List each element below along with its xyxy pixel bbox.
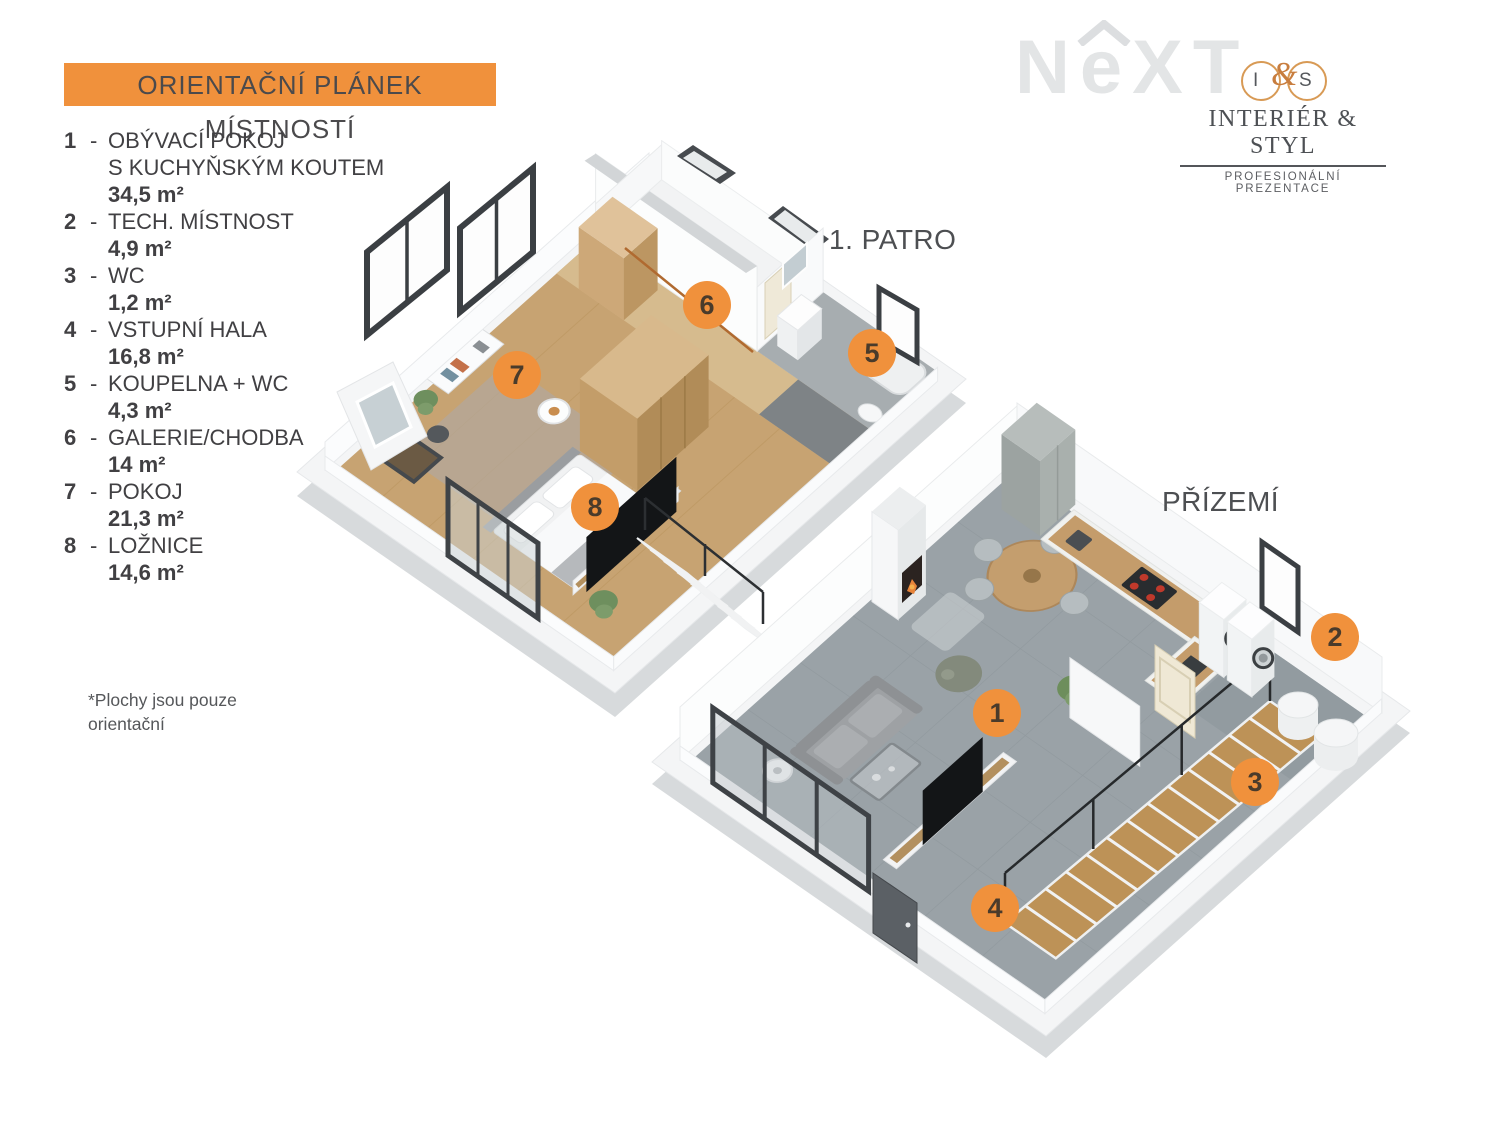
marker-number: 6 <box>699 290 714 321</box>
legend-item-dash: - <box>90 208 108 235</box>
legend-item-name: VSTUPNÍ HALA <box>108 316 267 343</box>
door-handle <box>906 923 911 928</box>
legend-item-number: 7 <box>64 478 90 505</box>
title-banner: ORIENTAČNÍ PLÁNEK MÍSTNOSTÍ <box>64 63 496 106</box>
legend-item-number: 3 <box>64 262 90 289</box>
legend-item-name: KOUPELNA + WC <box>108 370 288 397</box>
marker-number: 5 <box>864 338 879 369</box>
legend-item-dash: - <box>90 532 108 559</box>
interier-styl-logo: I & S INTERIÉR & STYL PROFESIONÁLNÍ PREZ… <box>1180 58 1386 195</box>
legend-item-number: 5 <box>64 370 90 397</box>
legend-item-dash: - <box>90 424 108 451</box>
legend-item-number: 6 <box>64 424 90 451</box>
laundry-basket <box>1314 719 1358 747</box>
fireplace-front <box>872 512 898 620</box>
marker-number: 1 <box>989 698 1004 729</box>
marker-number: 8 <box>587 492 602 523</box>
legend-item-number: 1 <box>64 127 90 154</box>
logo-name: INTERIÉR & STYL <box>1180 106 1386 167</box>
room-marker-8: 8 <box>571 483 619 531</box>
infinity-icon: I & S <box>1235 58 1331 102</box>
dryer <box>1227 602 1274 697</box>
page: ORIENTAČNÍ PLÁNEK MÍSTNOSTÍ 1-OBÝVACÍ PO… <box>0 0 1500 1125</box>
legend-item-number: 2 <box>64 208 90 235</box>
next-letter-n: N <box>1015 25 1080 110</box>
legend-item-dash: - <box>90 316 108 343</box>
room-marker-6: 6 <box>683 281 731 329</box>
ground-floor-label: PŘÍZEMÍ <box>1162 486 1279 518</box>
logo-tagline: PROFESIONÁLNÍ PREZENTACE <box>1180 171 1386 195</box>
legend-item-name: LOŽNICE <box>108 532 203 559</box>
marker-number: 2 <box>1327 622 1342 653</box>
legend-item-dash: - <box>90 262 108 289</box>
next-letter-e-wrap: e <box>1080 28 1132 108</box>
room-marker-3: 3 <box>1231 758 1279 806</box>
legend-item-number: 8 <box>64 532 90 559</box>
monogram-i: I <box>1253 70 1258 92</box>
roof-icon <box>1076 20 1132 46</box>
ground-floor-plan <box>650 395 1430 1095</box>
legend-item-dash: - <box>90 127 108 154</box>
flame-icon <box>910 585 915 590</box>
monogram-ampersand: & <box>1271 56 1297 94</box>
marker-number: 3 <box>1247 767 1262 798</box>
footnote: *Plochy jsou pouze orientační <box>88 688 237 736</box>
legend-item-dash: - <box>90 370 108 397</box>
monogram-s: S <box>1299 70 1312 92</box>
marker-number: 7 <box>509 360 524 391</box>
first-floor-label: 1. PATRO <box>829 224 956 256</box>
room-marker-7: 7 <box>493 351 541 399</box>
legend-item-name: POKOJ <box>108 478 183 505</box>
laundry-basket <box>1278 692 1318 718</box>
room-marker-2: 2 <box>1311 613 1359 661</box>
legend-item-number: 4 <box>64 316 90 343</box>
marker-number: 4 <box>987 893 1002 924</box>
legend-item-name: GALERIE/CHODBA <box>108 424 304 451</box>
legend-item-name: WC <box>108 262 145 289</box>
legend-item-name: TECH. MÍSTNOST <box>108 208 294 235</box>
room-marker-5: 5 <box>848 329 896 377</box>
legend-item-dash: - <box>90 478 108 505</box>
room-marker-1: 1 <box>973 689 1021 737</box>
room-marker-4: 4 <box>971 884 1019 932</box>
